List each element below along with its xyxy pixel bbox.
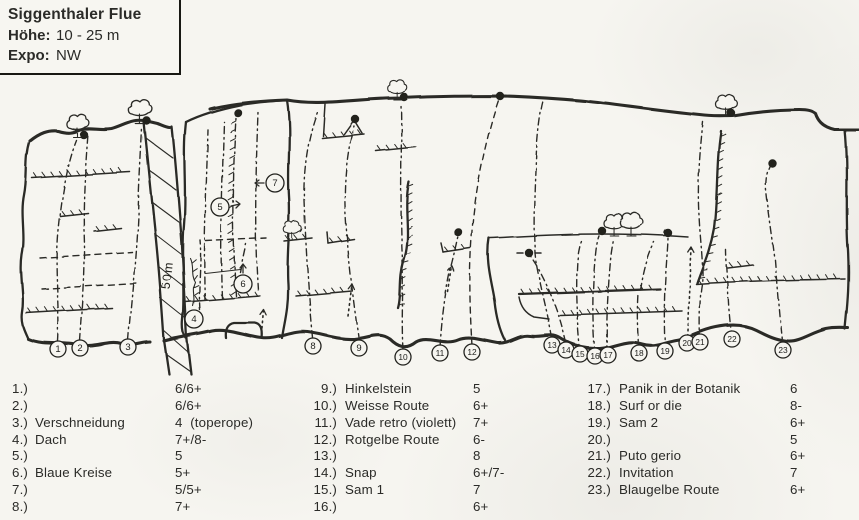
route-number: 19.) [576,415,611,432]
route-grade: 5 [790,432,805,449]
route-marker-8: 8 [305,338,321,354]
route-number: 18.) [576,398,611,415]
route-grade: 5 [175,448,253,465]
height-row: Höhe: 10 - 25 m [8,27,170,44]
route-row: 23.) Blaugelbe Route 6+ [576,482,805,499]
svg-text:14: 14 [561,345,571,355]
route-name [35,482,168,499]
route-marker-9: 9 [351,340,367,356]
route-marker-4: 4 [185,310,203,328]
route-name: Verschneidung [35,415,168,432]
route-marker-19: 19 [657,343,673,359]
svg-text:21: 21 [695,337,705,347]
route-grade: 6+ [790,448,805,465]
route-grade: 6+ [473,398,504,415]
svg-text:13: 13 [547,340,557,350]
route-name: Weisse Route [345,398,465,415]
route-number: 13.) [300,448,337,465]
route-row: 11.) Vade retro (violett) 7+ [300,415,504,432]
expo-label: Expo: [8,47,56,64]
route-row: 12.) Rotgelbe Route 6- [300,432,504,449]
route-number: 14.) [300,465,337,482]
route-name: Sam 2 [619,415,782,432]
svg-text:19: 19 [660,346,670,356]
route-number: 16.) [300,499,337,516]
route-name: Sam 1 [345,482,465,499]
route-marker-23: 23 [775,342,791,358]
route-grade: 6/6+ [175,381,253,398]
svg-text:8: 8 [310,341,315,352]
route-grade: 6 [790,381,805,398]
route-row: 7.) 5/5+ [4,482,253,499]
route-grade: 7 [473,482,504,499]
route-row: 20.) 5 [576,432,805,449]
svg-text:20: 20 [682,338,692,348]
route-grade: 6+/7- [473,465,504,482]
expo-row: Expo: NW [8,47,170,64]
route-grade: 4 (toperope) [175,415,253,432]
route-number: 1.) [4,381,28,398]
route-row: 19.) Sam 2 6+ [576,415,805,432]
route-marker-3: 3 [120,339,136,355]
route-row: 21.) Puto gerio 6+ [576,448,805,465]
route-name: Puto gerio [619,448,782,465]
crag-info-box: Siggenthaler Flue Höhe: 10 - 25 m Expo: … [0,0,181,75]
scale-label: 50m [159,260,176,290]
route-grade: 8 [473,448,504,465]
route-marker-1: 1 [50,341,66,357]
route-marker-10: 10 [395,349,411,365]
svg-text:23: 23 [778,345,788,355]
expo-value: NW [56,47,81,64]
route-row: 22.) Invitation 7 [576,465,805,482]
route-number: 21.) [576,448,611,465]
route-number: 17.) [576,381,611,398]
route-row: 13.) 8 [300,448,504,465]
svg-text:15: 15 [575,349,585,359]
route-row: 6.) Blaue Kreise 5+ [4,465,253,482]
route-marker-17: 17 [600,347,616,363]
route-number: 2.) [4,398,28,415]
route-name: Snap [345,465,465,482]
route-grade: 6+ [473,499,504,516]
svg-text:3: 3 [125,342,130,353]
route-grade: 6+ [790,482,805,499]
height-value: 10 - 25 m [56,27,119,44]
page-title: Siggenthaler Flue [8,6,170,24]
route-name: Blaue Kreise [35,465,168,482]
rock-face-art: 50m [21,80,859,374]
route-row: 4.) Dach 7+/8- [4,432,253,449]
route-name: Surf or die [619,398,782,415]
route-number: 12.) [300,432,337,449]
svg-text:4: 4 [191,314,196,325]
route-grade: 7+ [175,499,253,516]
svg-text:5: 5 [217,202,222,213]
route-grade: 5+ [175,465,253,482]
route-name: Blaugelbe Route [619,482,782,499]
route-marker-2: 2 [72,340,88,356]
route-grade: 6- [473,432,504,449]
route-lines [57,99,783,354]
route-number: 22.) [576,465,611,482]
route-marker-6: 6 [234,264,252,293]
svg-text:16: 16 [590,351,600,361]
route-list-column-3: 17.) Panik in der Botanik 6 18.) Surf or… [576,381,805,499]
route-name [345,499,465,516]
route-marker-22: 22 [724,331,740,347]
route-number: 3.) [4,415,28,432]
route-row: 15.) Sam 1 7 [300,482,504,499]
route-number: 8.) [4,499,28,516]
route-marker-5: 5 [211,198,240,216]
route-name [619,432,782,449]
route-grade: 7+/8- [175,432,253,449]
svg-text:6: 6 [240,279,245,290]
route-grade: 6+ [790,415,805,432]
svg-text:11: 11 [436,348,445,358]
route-name [35,448,168,465]
route-marker-21: 21 [692,334,708,350]
route-number: 11.) [300,415,337,432]
svg-text:22: 22 [727,334,737,344]
route-row: 18.) Surf or die 8- [576,398,805,415]
svg-text:17: 17 [603,350,613,360]
route-row: 3.) Verschneidung 4 (toperope) [4,415,253,432]
route-number: 6.) [4,465,28,482]
svg-text:9: 9 [356,343,361,354]
route-number: 23.) [576,482,611,499]
route-row: 14.) Snap 6+/7- [300,465,504,482]
route-number: 10.) [300,398,337,415]
route-grade: 7+ [473,415,504,432]
route-grade: 7 [790,465,805,482]
svg-text:10: 10 [398,352,408,362]
route-marker-11: 11 [432,345,448,361]
trees [66,80,737,240]
svg-text:18: 18 [634,348,644,358]
route-name: Panik in der Botanik [619,381,782,398]
route-name [35,381,168,398]
route-row: 10.) Weisse Route 6+ [300,398,504,415]
route-name: Vade retro (violett) [345,415,465,432]
route-row: 2.) 6/6+ [4,398,253,415]
route-marker-15: 15 [572,346,588,362]
svg-text:7: 7 [272,178,277,189]
route-list-column-1: 1.) 6/6+ 2.) 6/6+ 3.) Verschneidung 4 (t… [4,381,253,516]
svg-text:12: 12 [467,347,477,357]
route-grade: 5 [473,381,504,398]
route-number: 15.) [300,482,337,499]
route-name: Rotgelbe Route [345,432,465,449]
route-row: 5.) 5 [4,448,253,465]
topo-page: Siggenthaler Flue Höhe: 10 - 25 m Expo: … [0,0,859,520]
svg-text:2: 2 [77,343,82,354]
route-name [35,499,168,516]
route-row: 16.) 6+ [300,499,504,516]
route-number: 9.) [300,381,337,398]
route-row: 8.) 7+ [4,499,253,516]
route-number: 4.) [4,432,28,449]
ledges [26,120,845,315]
route-grade: 6/6+ [175,398,253,415]
route-name: Hinkelstein [345,381,465,398]
route-name [35,398,168,415]
route-name: Dach [35,432,168,449]
route-marker-12: 12 [464,344,480,360]
route-row: 9.) Hinkelstein 5 [300,381,504,398]
route-number: 7.) [4,482,28,499]
route-grade: 8- [790,398,805,415]
height-label: Höhe: [8,27,56,44]
route-row: 1.) 6/6+ [4,381,253,398]
route-number: 5.) [4,448,28,465]
cliff-outline [21,96,859,349]
route-marker-18: 18 [631,345,647,361]
route-name: Invitation [619,465,782,482]
route-grade: 5/5+ [175,482,253,499]
svg-text:1: 1 [55,344,60,355]
route-marker-7: 7 [255,174,284,192]
route-list-column-2: 9.) Hinkelstein 5 10.) Weisse Route 6+ 1… [300,381,504,516]
route-row: 17.) Panik in der Botanik 6 [576,381,805,398]
route-number: 20.) [576,432,611,449]
route-name [345,448,465,465]
